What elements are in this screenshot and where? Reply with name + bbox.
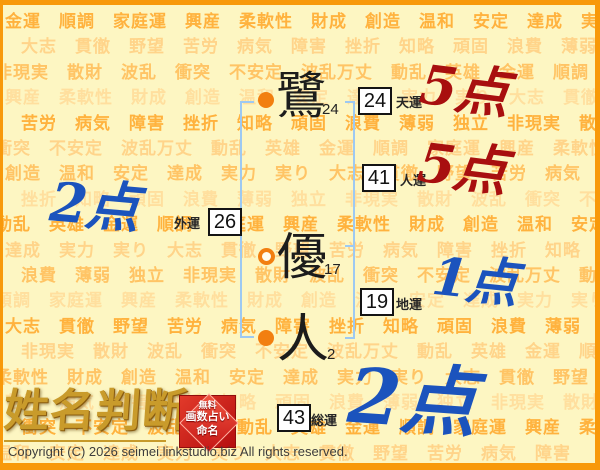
given-first-char-dot-icon bbox=[258, 248, 275, 265]
gaiun-value-box: 26 bbox=[208, 208, 242, 236]
surname-char-dot-icon bbox=[258, 92, 274, 108]
right-bracket-line bbox=[353, 101, 355, 339]
right-bracket-tick-middle bbox=[345, 245, 354, 247]
name-char-3-strokes: 2 bbox=[327, 347, 335, 362]
gaiun-label: 外運 bbox=[174, 217, 200, 230]
souun-label: 総運 bbox=[311, 414, 337, 427]
free-kazu-uranai-seal-badge[interactable]: 無料 画数占い 命名 bbox=[179, 395, 236, 448]
jinun-value-box: 41 bbox=[362, 164, 396, 192]
tenun-value-box: 24 bbox=[358, 87, 392, 115]
chiun-label: 地運 bbox=[396, 298, 422, 311]
name-char-1-strokes: 24 bbox=[322, 102, 339, 117]
seimei-result-page: 金運 順調 家庭運 興産 柔軟性 財成 創造 温和 安定 達成 実力 実り大志 … bbox=[0, 0, 600, 470]
gaiun-bracket-tick-bottom bbox=[240, 336, 254, 338]
seal-line-2: 画数占い bbox=[180, 411, 235, 425]
logo-underline bbox=[4, 440, 166, 442]
site-logo[interactable]: 姓名判断 bbox=[2, 388, 189, 433]
gaiun-score: 2点 bbox=[48, 174, 140, 235]
copyright-text: Copyright (C) 2026 seimei.linkstudio.biz… bbox=[8, 444, 348, 459]
right-bracket-tick-top bbox=[345, 101, 354, 103]
tenun-score: 5点 bbox=[417, 57, 511, 121]
seal-line-3: 命名 bbox=[180, 425, 235, 439]
right-bracket-tick-bottom bbox=[345, 337, 354, 339]
name-char-1: 鷺 bbox=[276, 71, 326, 121]
seal-line-1: 無料 bbox=[180, 400, 235, 411]
chiun-score: 1点 bbox=[430, 251, 519, 312]
souun-value-box: 43 bbox=[277, 404, 311, 432]
gaiun-bracket-tick-top bbox=[240, 101, 254, 103]
jinun-score: 5点 bbox=[415, 135, 509, 199]
chart-overlay: 鷺 24 優 17 人 2 24 天運 41 人運 19 地運 26 外運 43… bbox=[0, 0, 600, 470]
name-char-3: 人 bbox=[277, 314, 329, 366]
name-char-2: 優 bbox=[277, 232, 327, 282]
souun-score: 2点 bbox=[346, 358, 480, 443]
given-last-char-dot-icon bbox=[258, 330, 274, 346]
name-char-2-strokes: 17 bbox=[324, 262, 341, 277]
seal-text: 無料 画数占い 命名 bbox=[180, 400, 235, 439]
chiun-value-box: 19 bbox=[360, 288, 394, 316]
